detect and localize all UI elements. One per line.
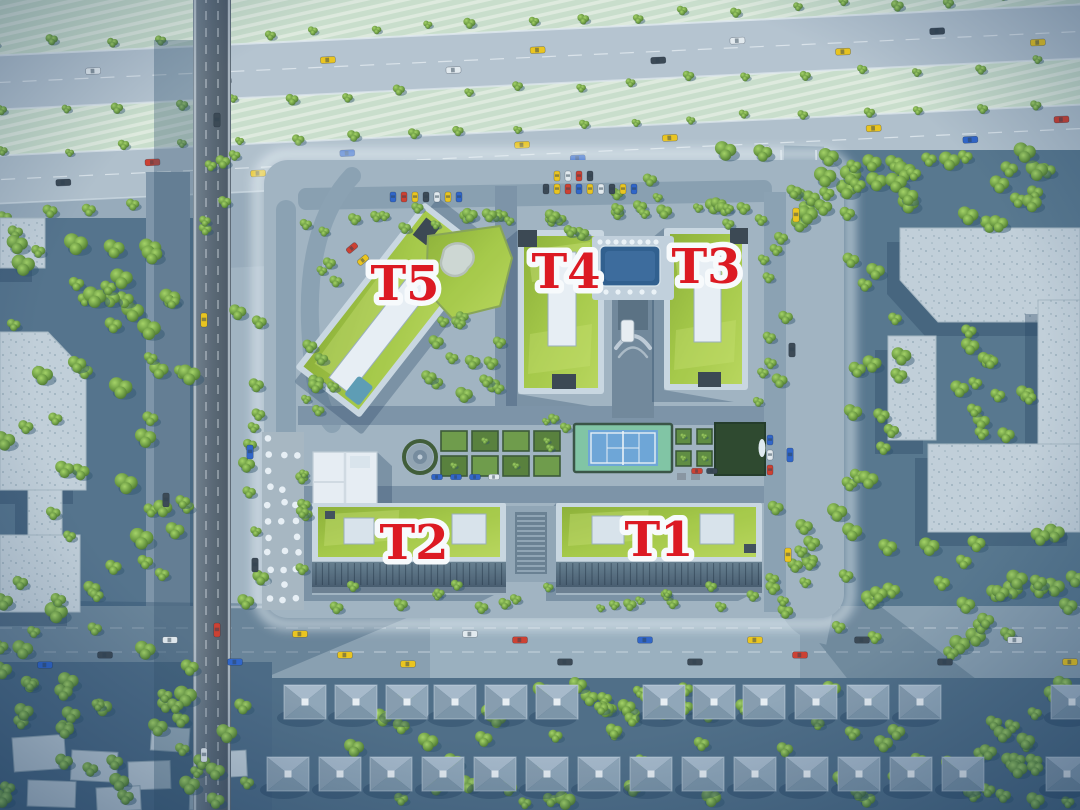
masterplan-render: T5 T4 T3 T2 T1 xyxy=(0,0,1080,810)
aerial-scene: T5 T4 T3 T2 T1 xyxy=(0,0,1080,810)
vignette xyxy=(0,0,1080,810)
